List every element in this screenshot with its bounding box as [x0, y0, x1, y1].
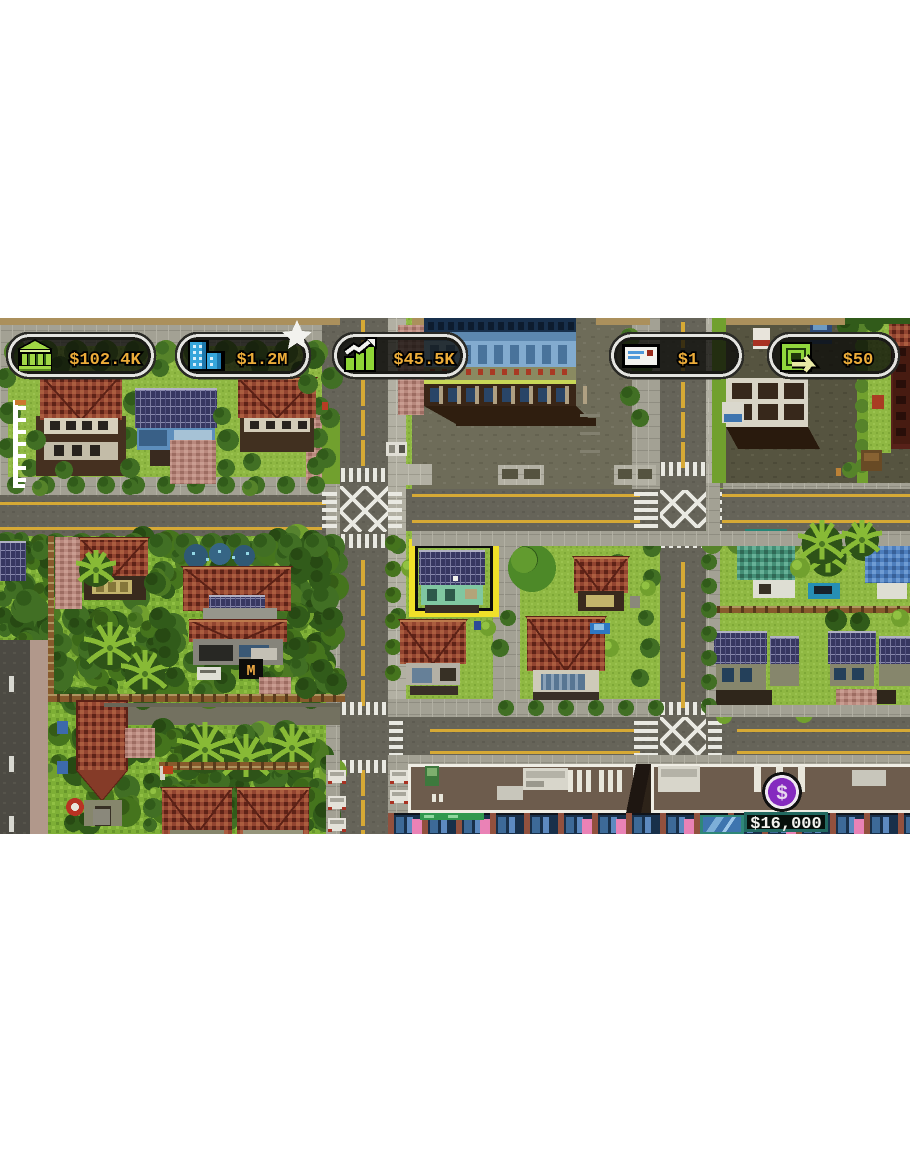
- svg-text:$102.4K: $102.4K: [69, 351, 141, 370]
- svg-text:M: M: [246, 663, 255, 680]
- svg-text:$50: $50: [843, 351, 874, 370]
- svg-text:$1: $1: [678, 351, 698, 370]
- svg-text:$1.2M: $1.2M: [236, 351, 287, 370]
- svg-text:$45.5K: $45.5K: [393, 351, 455, 370]
- svg-text:$: $: [776, 783, 788, 806]
- svg-text:$16,000: $16,000: [750, 815, 821, 834]
